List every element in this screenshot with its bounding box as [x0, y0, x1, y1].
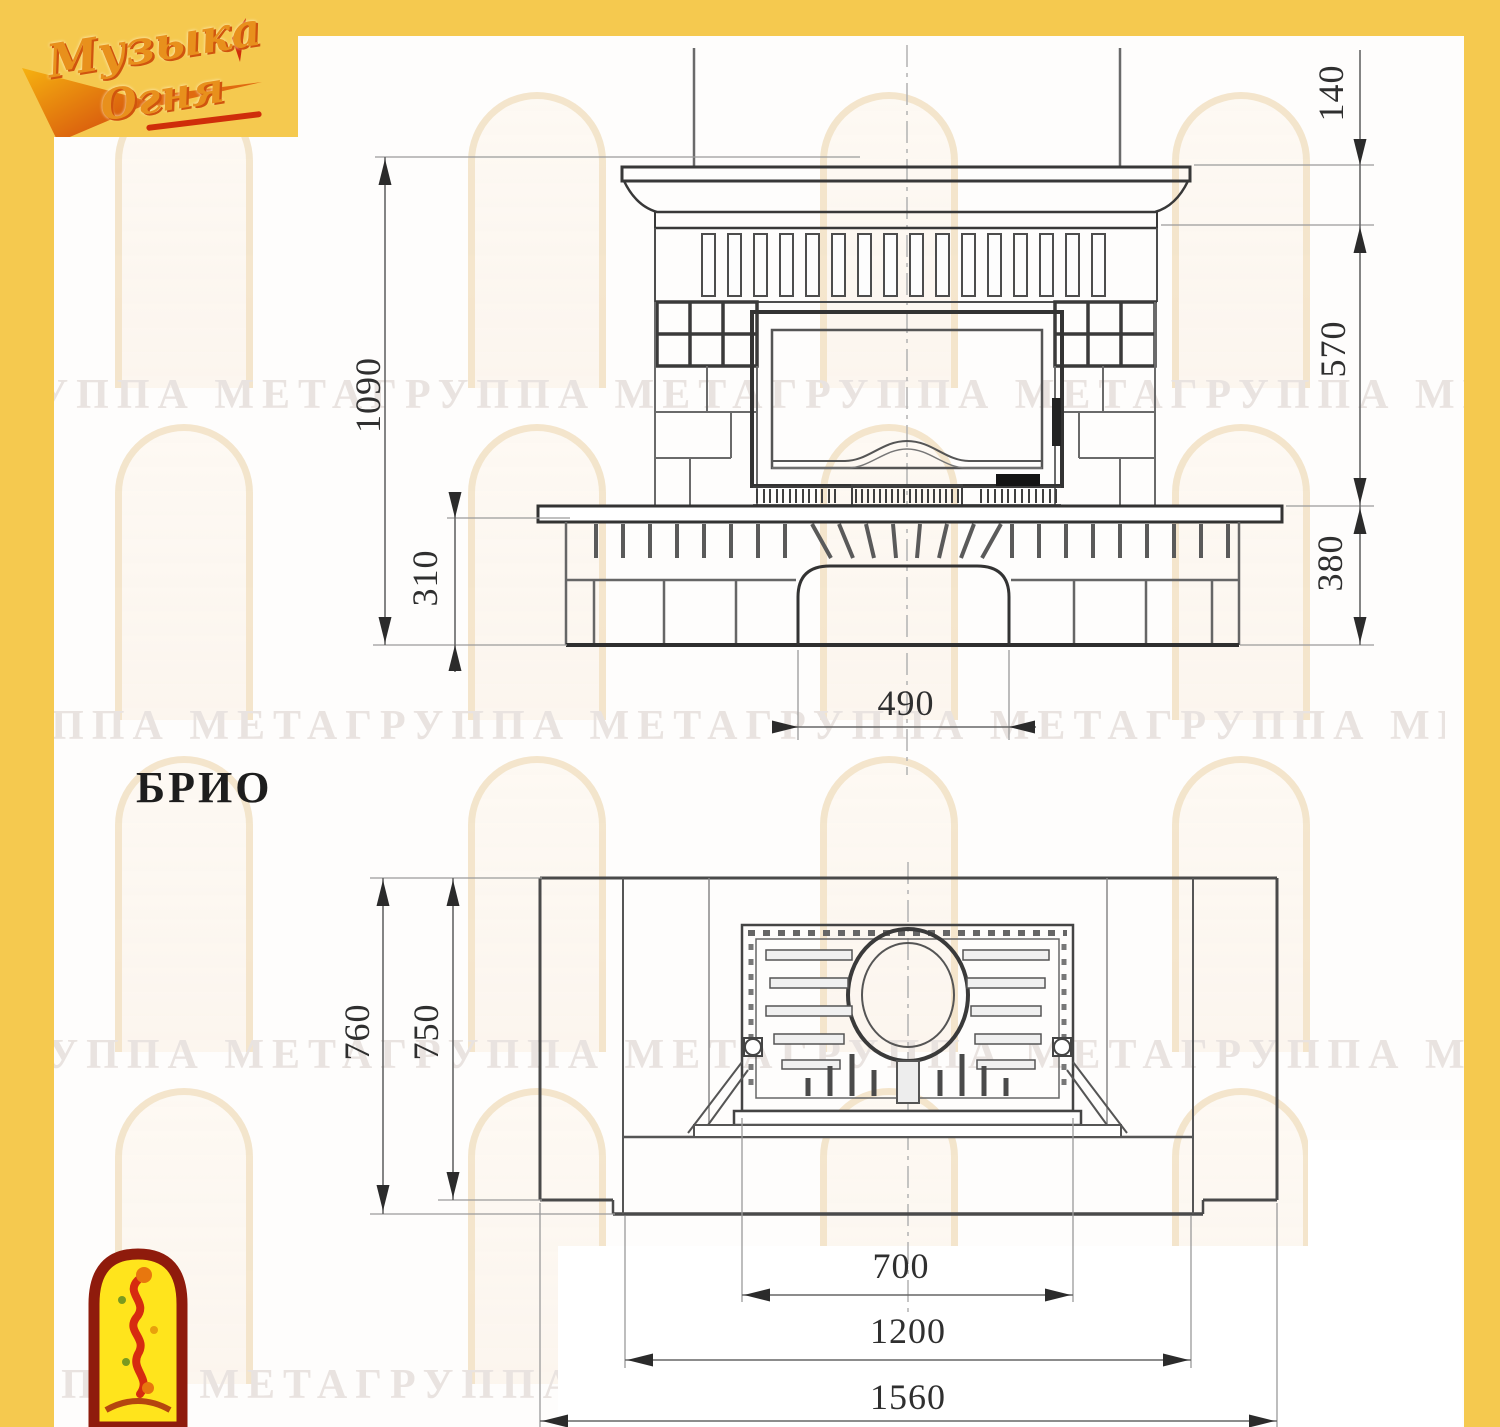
catalog-page: { "model": { "name": "БРИО" }, "logo": {… — [0, 0, 1500, 1427]
door-handle — [1052, 398, 1061, 446]
fireplace-technical-drawing — [0, 0, 1500, 1427]
dim-label-plinth-height: 310 — [407, 550, 443, 607]
dim-label-total-height: 1090 — [350, 357, 386, 433]
dentils — [702, 234, 1105, 296]
mantel-shelf — [622, 167, 1190, 228]
dim-label-hearth-height: 380 — [1312, 535, 1348, 592]
insert-front-plate — [734, 1111, 1081, 1125]
hearth-plate — [694, 1125, 1121, 1137]
dim-label-body-depth: 750 — [408, 1004, 444, 1061]
brand-logo-block: Музыка Огня — [0, 0, 298, 137]
dim-label-niche-width: 490 — [878, 685, 935, 721]
base-masonry — [566, 522, 1239, 645]
center-channel — [897, 1061, 919, 1103]
dim-label-opening-height: 570 — [1315, 321, 1351, 378]
mascot-flame-emblem-icon — [86, 1242, 190, 1427]
ash-lip — [996, 474, 1040, 486]
plan-dimension-arrows — [377, 880, 1276, 1427]
dim-label-front-width: 1200 — [870, 1313, 946, 1349]
dim-label-shelf-height: 140 — [1313, 65, 1349, 122]
dim-label-insert-width: 700 — [873, 1248, 930, 1284]
dentil-frieze — [655, 228, 1157, 302]
front-dimension-rules — [385, 50, 1360, 727]
left-border-band — [0, 0, 54, 1427]
front-elevation-view — [373, 45, 1374, 775]
dim-label-total-depth: 760 — [339, 1004, 375, 1061]
wood-niche-arch — [798, 566, 1009, 645]
front-dimension-lines — [373, 157, 1374, 740]
plan-view — [370, 862, 1277, 1427]
dim-label-total-width: 1560 — [870, 1379, 946, 1415]
slat-course — [596, 524, 1228, 558]
corner-tile-block-left — [657, 302, 757, 366]
model-name-title: БРИО — [136, 762, 272, 813]
right-border-band — [1464, 0, 1500, 1427]
corner-tile-block-right — [1055, 302, 1155, 366]
hearth-slab — [538, 506, 1282, 522]
